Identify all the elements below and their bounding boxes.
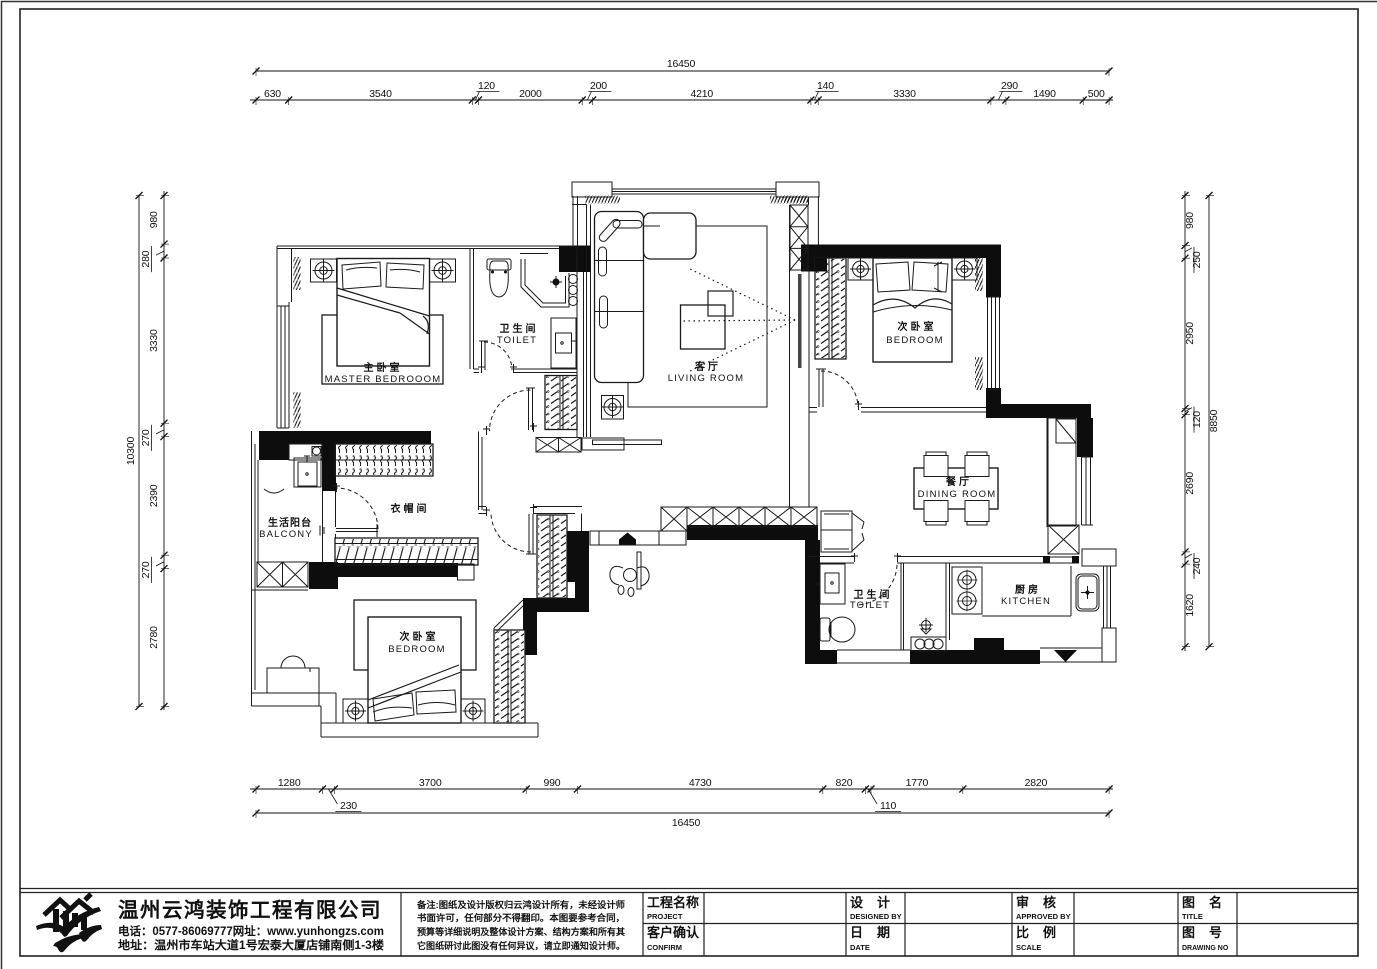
svg-text:备注:图纸及设计版权归云鸿设计所有，未经设计师: 备注:图纸及设计版权归云鸿设计所有，未经设计师 <box>416 899 625 910</box>
svg-text:生活阳台: 生活阳台 <box>268 516 312 529</box>
svg-text:TOILET: TOILET <box>497 335 537 346</box>
svg-text:4210: 4210 <box>691 88 714 100</box>
svg-text:书面许可，任何部分不得翻印。本图要参考合同，: 书面许可，任何部分不得翻印。本图要参考合同， <box>417 912 625 923</box>
svg-text:图号: 图号 <box>1182 925 1236 940</box>
svg-text:地址：温州市车站大道1号宏泰大厦店铺南侧1-3楼: 地址：温州市车站大道1号宏泰大厦店铺南侧1-3楼 <box>118 938 385 952</box>
svg-text:500: 500 <box>1088 88 1105 100</box>
svg-text:卫生间: 卫生间 <box>500 322 539 335</box>
svg-text:它图纸研讨此图没有任何异议，请立即通知设计师。: 它图纸研讨此图没有任何异议，请立即通知设计师。 <box>417 940 625 951</box>
svg-text:BEDROOM: BEDROOM <box>388 644 446 655</box>
svg-text:270: 270 <box>140 561 152 578</box>
svg-text:DINING ROOM: DINING ROOM <box>918 489 997 500</box>
svg-text:主卧室: 主卧室 <box>364 361 403 374</box>
svg-text:990: 990 <box>543 777 560 789</box>
svg-text:200: 200 <box>590 80 607 92</box>
svg-text:日期: 日期 <box>850 925 904 940</box>
svg-text:图名: 图名 <box>1182 895 1236 910</box>
svg-text:2690: 2690 <box>1184 472 1196 495</box>
svg-text:120: 120 <box>478 80 495 92</box>
svg-text:MASTER BEDROOOM: MASTER BEDROOOM <box>325 374 442 385</box>
svg-text:10300: 10300 <box>125 437 137 466</box>
svg-text:预算等详细说明及整体设计方案、结构方案和所有其: 预算等详细说明及整体设计方案、结构方案和所有其 <box>417 926 625 937</box>
svg-text:CONFIRM: CONFIRM <box>647 943 682 952</box>
svg-text:980: 980 <box>148 211 160 228</box>
svg-text:TOILET: TOILET <box>850 600 890 611</box>
svg-text:LIVING ROOM: LIVING ROOM <box>668 373 745 384</box>
svg-text:2000: 2000 <box>519 88 542 100</box>
svg-text:1490: 1490 <box>1033 88 1056 100</box>
svg-text:次卧室: 次卧室 <box>898 320 937 333</box>
svg-text:客厅: 客厅 <box>694 360 721 373</box>
svg-text:温州云鸿装饰工程有限公司: 温州云鸿装饰工程有限公司 <box>118 898 382 922</box>
svg-text:270: 270 <box>140 429 152 446</box>
svg-text:290: 290 <box>1001 80 1018 92</box>
svg-text:BEDROOM: BEDROOM <box>886 335 944 346</box>
svg-text:TITLE: TITLE <box>1182 912 1203 921</box>
svg-text:1280: 1280 <box>278 777 301 789</box>
svg-text:审核: 审核 <box>1016 895 1070 910</box>
svg-text:1770: 1770 <box>906 777 929 789</box>
svg-text:KITCHEN: KITCHEN <box>1001 596 1051 607</box>
svg-text:120: 120 <box>1191 411 1203 428</box>
svg-text:980: 980 <box>1184 212 1196 229</box>
svg-text:1620: 1620 <box>1184 594 1196 617</box>
svg-text:设计: 设计 <box>850 895 904 910</box>
svg-text:BALCONY: BALCONY <box>259 529 313 540</box>
svg-text:16450: 16450 <box>667 58 696 70</box>
svg-text:2950: 2950 <box>1184 322 1196 345</box>
svg-text:衣帽间: 衣帽间 <box>391 502 430 515</box>
svg-text:DRAWING NO: DRAWING NO <box>1182 945 1229 952</box>
svg-text:电话：0577-86069777网址：www.yunhong: 电话：0577-86069777网址：www.yunhongzs.com <box>118 924 384 938</box>
svg-text:2390: 2390 <box>148 484 160 507</box>
svg-text:4730: 4730 <box>689 777 712 789</box>
svg-text:230: 230 <box>340 800 357 812</box>
svg-text:客户确认: 客户确认 <box>647 925 700 940</box>
svg-text:3540: 3540 <box>369 88 392 100</box>
svg-text:APPROVED BY: APPROVED BY <box>1016 912 1071 921</box>
svg-text:110: 110 <box>880 800 896 812</box>
svg-text:2780: 2780 <box>148 626 160 649</box>
svg-text:140: 140 <box>817 80 834 92</box>
svg-text:DESIGNED BY: DESIGNED BY <box>850 912 902 921</box>
svg-text:250: 250 <box>1191 251 1203 268</box>
svg-text:PROJECT: PROJECT <box>647 912 683 921</box>
svg-text:工程名称: 工程名称 <box>647 895 699 910</box>
svg-text:630: 630 <box>264 88 281 100</box>
svg-text:280: 280 <box>140 250 152 267</box>
svg-text:次卧室: 次卧室 <box>400 630 439 643</box>
svg-text:餐厅: 餐厅 <box>945 475 972 488</box>
svg-text:240: 240 <box>1191 557 1203 574</box>
svg-text:3330: 3330 <box>893 88 916 100</box>
svg-text:SCALE: SCALE <box>1016 943 1041 952</box>
svg-text:3330: 3330 <box>148 329 160 352</box>
svg-text:8850: 8850 <box>1208 409 1220 432</box>
svg-text:2820: 2820 <box>1025 777 1048 789</box>
svg-text:比例: 比例 <box>1016 925 1070 940</box>
svg-text:DATE: DATE <box>850 943 870 952</box>
svg-text:3700: 3700 <box>419 777 442 789</box>
svg-text:厨房: 厨房 <box>1015 583 1041 596</box>
svg-text:820: 820 <box>836 777 853 789</box>
svg-text:16450: 16450 <box>672 817 701 829</box>
